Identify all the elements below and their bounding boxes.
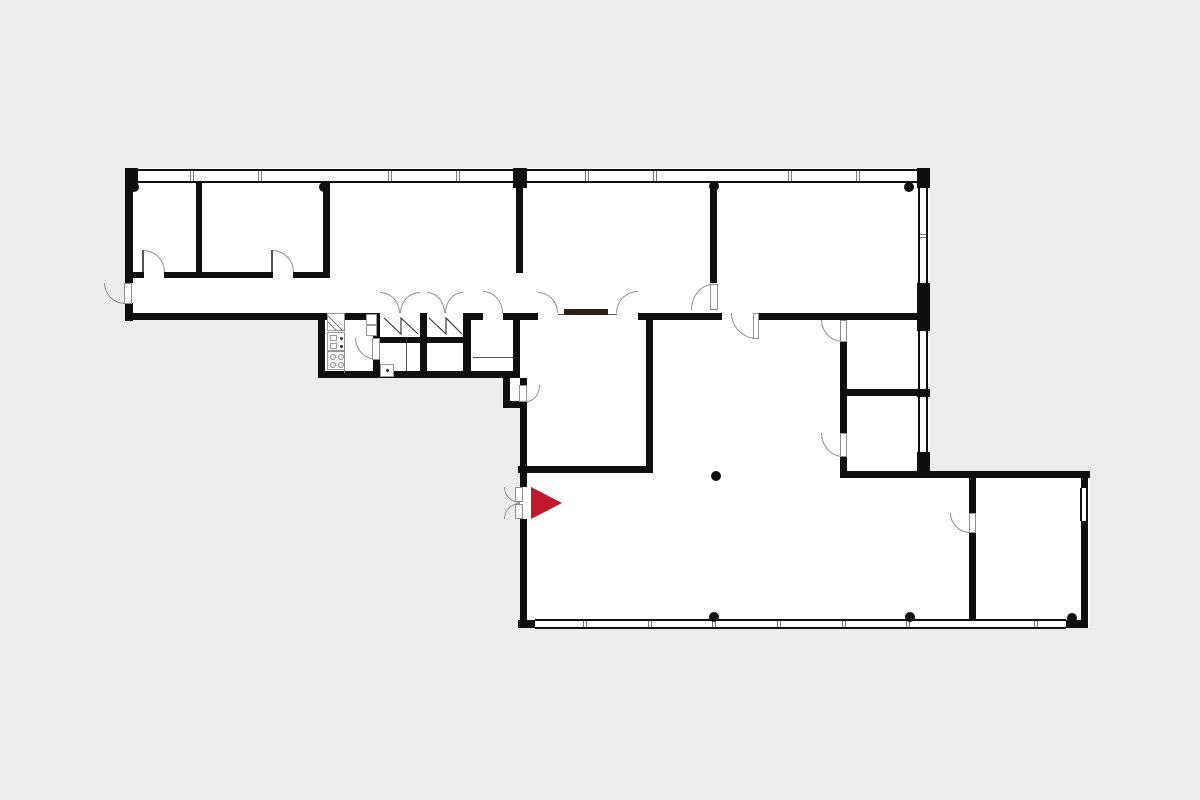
window-mullion bbox=[190, 171, 194, 181]
wall bbox=[847, 389, 917, 396]
wall bbox=[125, 272, 144, 278]
door-leaf-line bbox=[271, 250, 273, 272]
window-mullion bbox=[1034, 621, 1038, 627]
wall bbox=[969, 478, 976, 513]
wall bbox=[513, 313, 520, 378]
door-leaf bbox=[840, 433, 847, 457]
structural-column bbox=[709, 181, 719, 191]
wall bbox=[516, 186, 523, 273]
wall bbox=[513, 168, 527, 188]
wall bbox=[1081, 521, 1088, 628]
door-leaf bbox=[753, 313, 759, 339]
cabinet bbox=[366, 314, 377, 325]
window-mullion bbox=[920, 234, 926, 238]
window-mullion bbox=[583, 621, 587, 627]
sink-dot bbox=[340, 337, 343, 340]
floor-area bbox=[520, 471, 1090, 628]
structural-column bbox=[905, 612, 915, 622]
wall bbox=[518, 466, 653, 473]
wall bbox=[710, 183, 717, 283]
structural-column bbox=[319, 182, 329, 192]
wall bbox=[917, 168, 930, 188]
window-mullion bbox=[653, 171, 657, 181]
window-mullion bbox=[788, 171, 792, 181]
door-leaf bbox=[840, 320, 847, 342]
door-leaf-line bbox=[142, 250, 144, 272]
wall bbox=[969, 533, 976, 628]
window-mullion bbox=[777, 621, 781, 627]
wall bbox=[196, 183, 202, 273]
wall bbox=[518, 620, 535, 628]
wall bbox=[840, 457, 847, 471]
door-leaf bbox=[969, 513, 976, 533]
structural-column bbox=[1067, 613, 1077, 623]
floor-area bbox=[125, 168, 930, 320]
door-leaf bbox=[710, 284, 718, 310]
door-leaf bbox=[515, 487, 523, 502]
floor-area bbox=[318, 313, 520, 378]
floor-area bbox=[520, 407, 930, 471]
wall bbox=[380, 337, 420, 343]
window-mullion bbox=[258, 171, 262, 181]
door-leaf bbox=[519, 385, 527, 402]
window bbox=[918, 397, 928, 452]
window bbox=[1080, 488, 1088, 521]
wall bbox=[463, 313, 483, 320]
window-mullion bbox=[856, 171, 860, 181]
window-mullion bbox=[842, 621, 846, 627]
sliding-door-panel bbox=[564, 309, 608, 315]
sink-basin bbox=[330, 343, 337, 349]
wall bbox=[840, 342, 847, 433]
sink-basin bbox=[330, 335, 337, 341]
structural-column bbox=[129, 182, 139, 192]
wall bbox=[427, 337, 464, 343]
wall bbox=[520, 401, 527, 487]
wall bbox=[917, 389, 930, 397]
window bbox=[918, 331, 928, 389]
door-swing-arc bbox=[104, 283, 125, 304]
wall bbox=[520, 519, 527, 628]
wall bbox=[318, 371, 514, 378]
window-mullion bbox=[648, 621, 652, 627]
structural-column bbox=[904, 182, 914, 192]
wall bbox=[917, 283, 930, 331]
wall bbox=[1081, 478, 1088, 488]
sink-dot bbox=[340, 345, 343, 348]
wall bbox=[293, 272, 330, 278]
shaft-symbol bbox=[327, 313, 345, 331]
wall bbox=[840, 471, 1090, 478]
door-leaf bbox=[124, 283, 132, 304]
window-mullion bbox=[456, 171, 460, 181]
wall bbox=[323, 183, 330, 278]
wall bbox=[318, 313, 325, 378]
wc-dot bbox=[386, 369, 389, 372]
door-leaf bbox=[372, 338, 380, 360]
wall bbox=[373, 359, 380, 378]
stove-burner bbox=[330, 354, 336, 360]
window bbox=[535, 619, 1066, 629]
wall bbox=[164, 272, 273, 278]
window-mullion bbox=[585, 171, 589, 181]
floor-plan bbox=[0, 0, 1200, 800]
structural-column bbox=[711, 471, 721, 481]
wall bbox=[757, 313, 930, 320]
wall bbox=[125, 313, 325, 320]
stove-burner bbox=[330, 362, 336, 368]
wall bbox=[420, 313, 427, 378]
wall bbox=[463, 313, 471, 378]
cabinet bbox=[366, 325, 377, 336]
partition-line bbox=[406, 343, 407, 371]
door-leaf bbox=[515, 504, 523, 519]
wall bbox=[646, 313, 653, 473]
window-mullion bbox=[388, 171, 392, 181]
counter-line bbox=[473, 357, 513, 358]
counter-edge bbox=[344, 313, 346, 373]
wall bbox=[503, 313, 538, 320]
structural-column bbox=[709, 612, 719, 622]
